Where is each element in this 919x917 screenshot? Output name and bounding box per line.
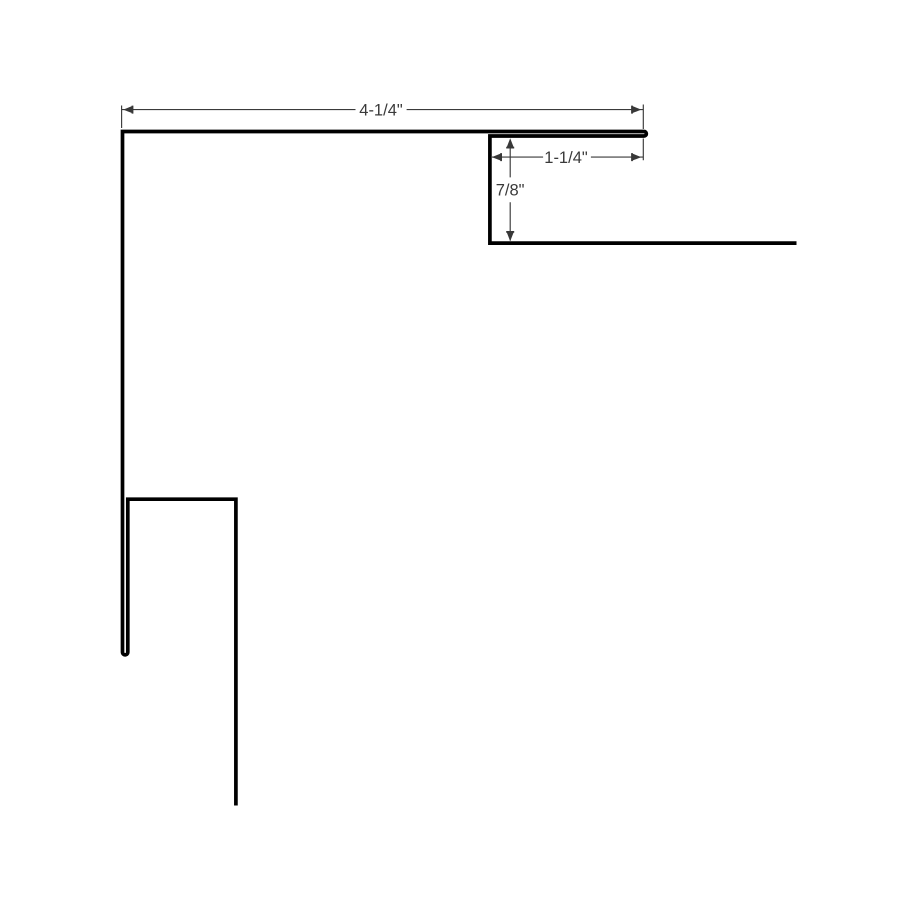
svg-text:4-1/4": 4-1/4" (359, 102, 403, 120)
svg-text:7/8": 7/8" (496, 182, 525, 200)
svg-text:1-1/4": 1-1/4" (544, 149, 588, 167)
